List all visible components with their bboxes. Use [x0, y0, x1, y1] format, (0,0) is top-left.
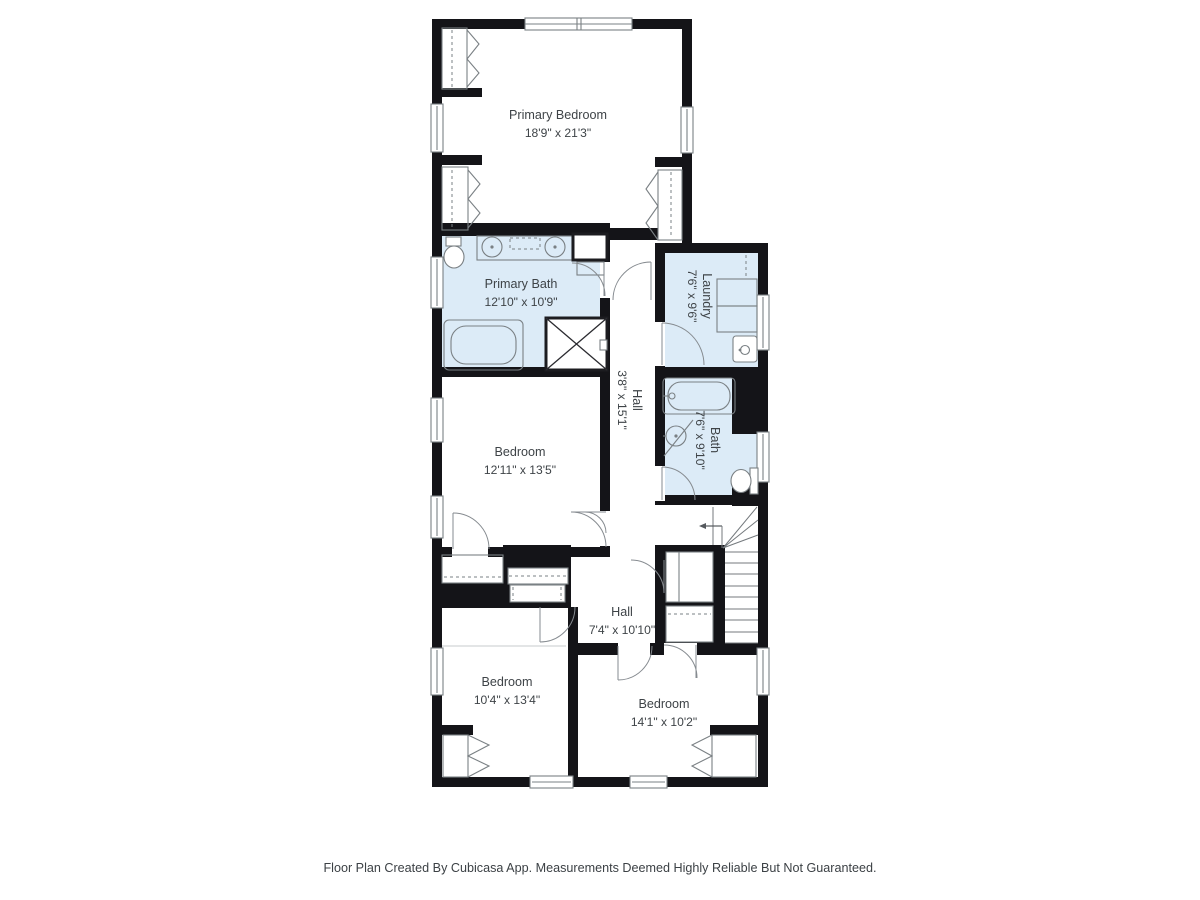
room-dims: 18'9" x 21'3" — [525, 126, 591, 140]
room-name: Bedroom — [494, 445, 545, 459]
utility-sink-icon — [733, 336, 757, 362]
room-dims: 12'11" x 13'5" — [484, 463, 556, 477]
room-dims: 7'6" x 9'10" — [693, 410, 707, 470]
window — [530, 776, 573, 788]
shower-valve — [600, 340, 607, 350]
built-in-shelves — [508, 568, 568, 602]
footer-disclaimer: Floor Plan Created By Cubicasa App. Meas… — [323, 861, 876, 875]
window — [757, 432, 769, 482]
window — [525, 18, 632, 30]
wall-segment — [655, 495, 768, 505]
toilet-icon — [444, 237, 464, 268]
linen-cabinet — [573, 234, 607, 260]
label-laundry: Laundry 7'6" x 9'6" — [685, 270, 714, 323]
window — [431, 257, 443, 308]
wall-segment — [432, 583, 503, 608]
window — [681, 107, 693, 153]
door-opening — [655, 466, 665, 501]
window — [757, 295, 769, 350]
room-name: Laundry — [700, 273, 714, 319]
room-dims: 7'4" x 10'10" — [589, 623, 655, 637]
door-opening — [618, 643, 650, 655]
room-dims: 3'8" x 15'1" — [615, 370, 629, 430]
window — [431, 104, 443, 152]
room-name: Bedroom — [638, 697, 689, 711]
room-name: Hall — [630, 389, 644, 411]
window — [757, 648, 769, 695]
hall-closet-compartments — [666, 552, 713, 642]
floor-plan-canvas: Primary Bedroom 18'9" x 21'3" Primary Ba… — [0, 0, 1200, 900]
window — [431, 496, 443, 538]
window — [431, 398, 443, 442]
wall-segment — [432, 725, 473, 735]
wall-segment — [432, 155, 482, 165]
toilet-icon — [731, 468, 758, 494]
room-dims: 12'10" x 10'9" — [484, 295, 557, 309]
room-name: Bedroom — [481, 675, 532, 689]
wall-segment — [432, 777, 768, 787]
room-name: Bath — [708, 427, 722, 453]
room-name: Primary Bath — [485, 277, 558, 291]
room-name: Hall — [611, 605, 633, 619]
room-dims: 7'6" x 9'6" — [685, 270, 699, 323]
shower-icon — [546, 318, 607, 370]
floor-plan-page: Primary Bedroom 18'9" x 21'3" Primary Ba… — [0, 0, 1200, 900]
room-dims: 10'4" x 13'4" — [474, 693, 540, 707]
wall-segment — [655, 157, 692, 167]
chimney-block — [732, 376, 760, 434]
room-dims: 14'1" x 10'2" — [631, 715, 697, 729]
window — [630, 776, 667, 788]
wall-segment — [655, 243, 768, 253]
wall-segment — [710, 725, 758, 735]
door-opening — [655, 322, 665, 366]
room-name: Primary Bedroom — [509, 108, 607, 122]
window — [431, 648, 443, 695]
wall-segment — [568, 607, 578, 787]
